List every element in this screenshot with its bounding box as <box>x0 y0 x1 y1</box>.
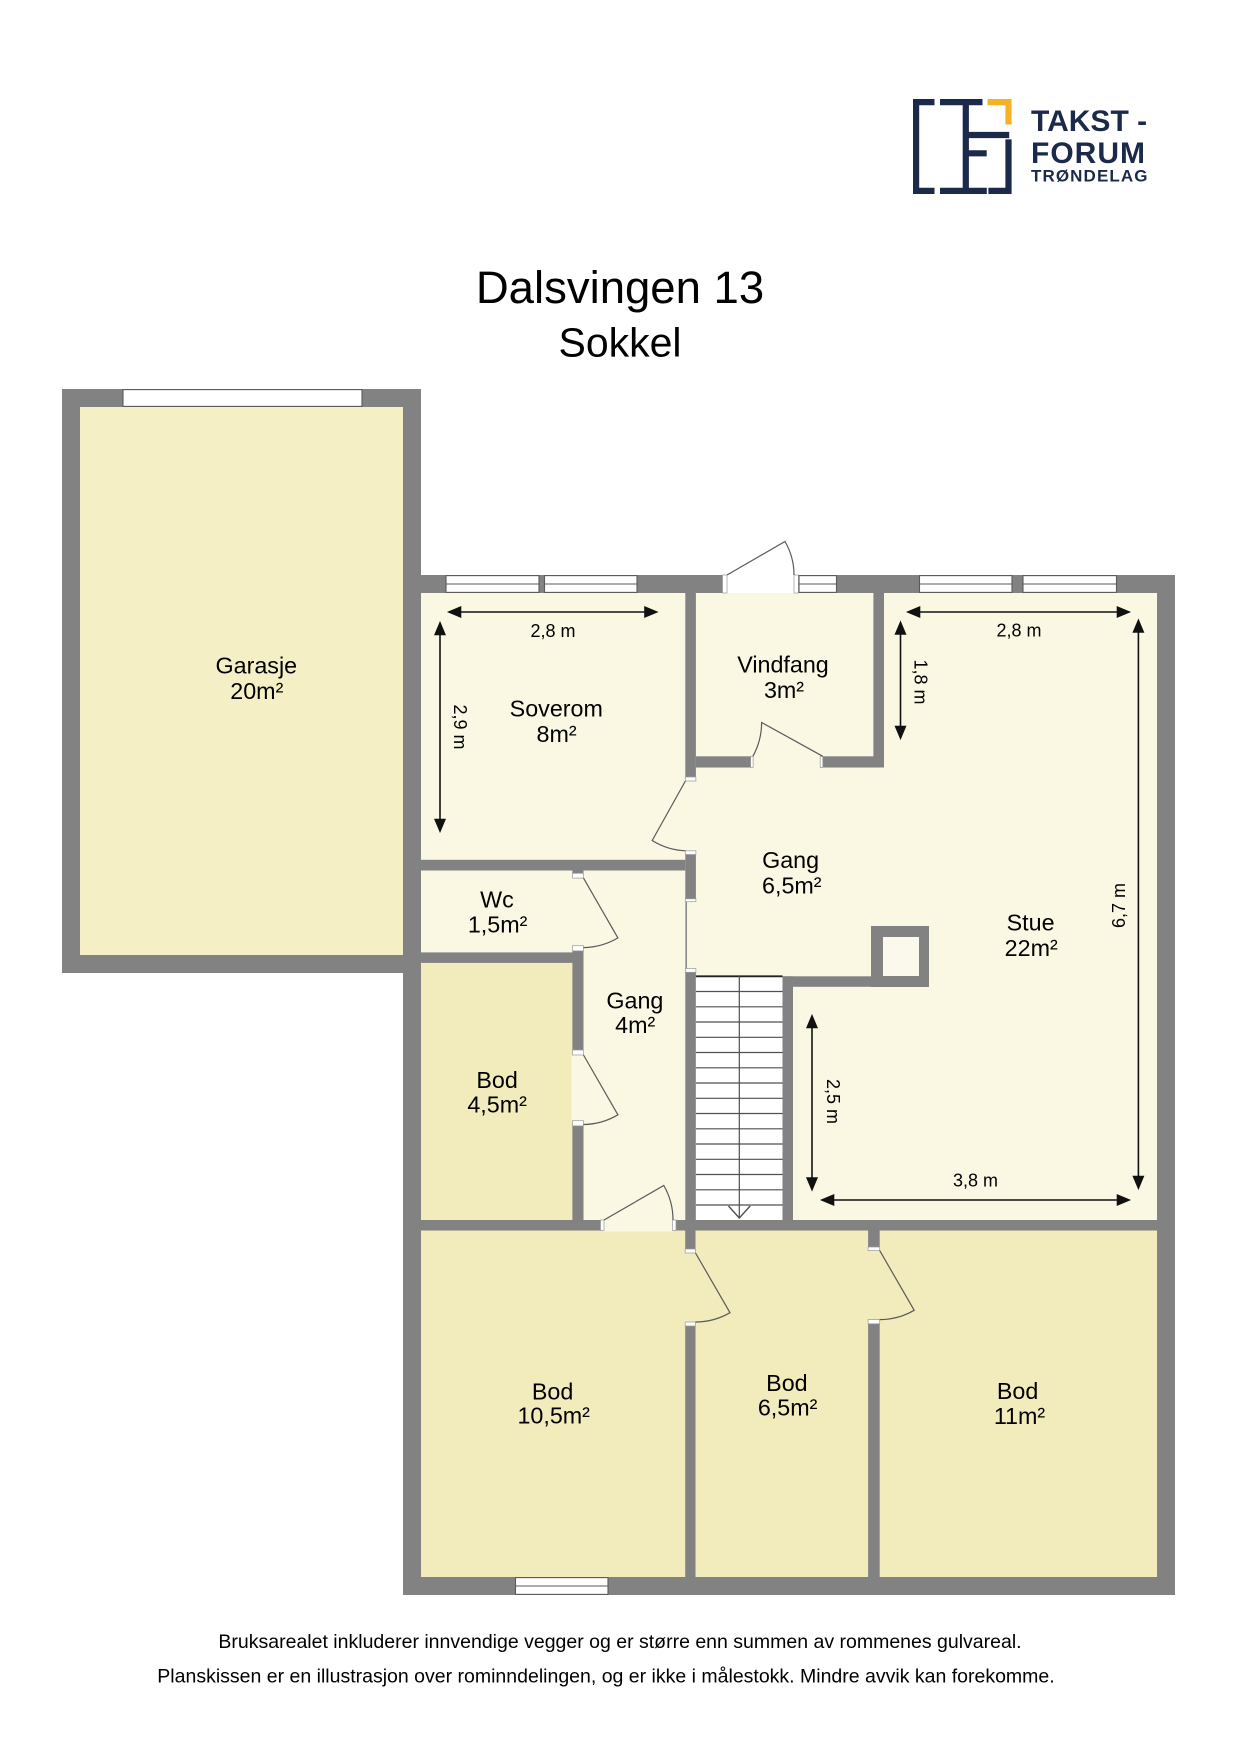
svg-text:1,5m²: 1,5m² <box>468 912 528 938</box>
svg-text:6,7 m: 6,7 m <box>1109 883 1129 928</box>
svg-text:2,8 m: 2,8 m <box>996 621 1041 641</box>
svg-text:Bod: Bod <box>476 1067 517 1093</box>
svg-text:2,8 m: 2,8 m <box>530 621 575 641</box>
svg-text:8m²: 8m² <box>537 721 577 747</box>
svg-text:2,9 m: 2,9 m <box>450 704 470 749</box>
svg-text:Garasje: Garasje <box>216 653 298 679</box>
svg-text:1,8 m: 1,8 m <box>911 659 931 704</box>
svg-text:Gang: Gang <box>762 847 819 873</box>
svg-text:Bruksarealet inkluderer innven: Bruksarealet inkluderer innvendige vegge… <box>218 1631 1021 1653</box>
svg-text:20m²: 20m² <box>230 678 283 704</box>
svg-text:3m²: 3m² <box>764 677 804 703</box>
svg-text:Vindfang: Vindfang <box>737 651 829 677</box>
svg-text:FORUM: FORUM <box>1031 137 1146 170</box>
svg-text:Stue: Stue <box>1007 910 1055 936</box>
svg-text:TRØNDELAG: TRØNDELAG <box>1031 167 1149 186</box>
svg-text:6,5m²: 6,5m² <box>762 873 822 899</box>
svg-text:Bod: Bod <box>997 1378 1038 1404</box>
svg-text:11m²: 11m² <box>994 1403 1046 1429</box>
svg-text:Dalsvingen 13: Dalsvingen 13 <box>476 262 764 313</box>
svg-text:Sokkel: Sokkel <box>558 320 681 366</box>
svg-text:22m²: 22m² <box>1005 935 1058 961</box>
svg-text:Planskissen er en illustrasjon: Planskissen er en illustrasjon over romi… <box>157 1666 1054 1688</box>
svg-text:Bod: Bod <box>766 1370 807 1396</box>
svg-text:3,8 m: 3,8 m <box>953 1171 998 1191</box>
svg-text:10,5m²: 10,5m² <box>517 1403 590 1429</box>
svg-text:4,5m²: 4,5m² <box>467 1092 527 1118</box>
svg-text:Gang: Gang <box>606 988 663 1014</box>
svg-text:2,5 m: 2,5 m <box>823 1079 843 1124</box>
svg-text:Wc: Wc <box>480 887 514 913</box>
svg-text:Soverom: Soverom <box>510 696 603 722</box>
svg-text:6,5m²: 6,5m² <box>758 1395 818 1421</box>
svg-text:4m²: 4m² <box>615 1012 655 1038</box>
svg-text:Bod: Bod <box>532 1379 573 1405</box>
svg-text:TAKST -: TAKST - <box>1031 105 1147 138</box>
